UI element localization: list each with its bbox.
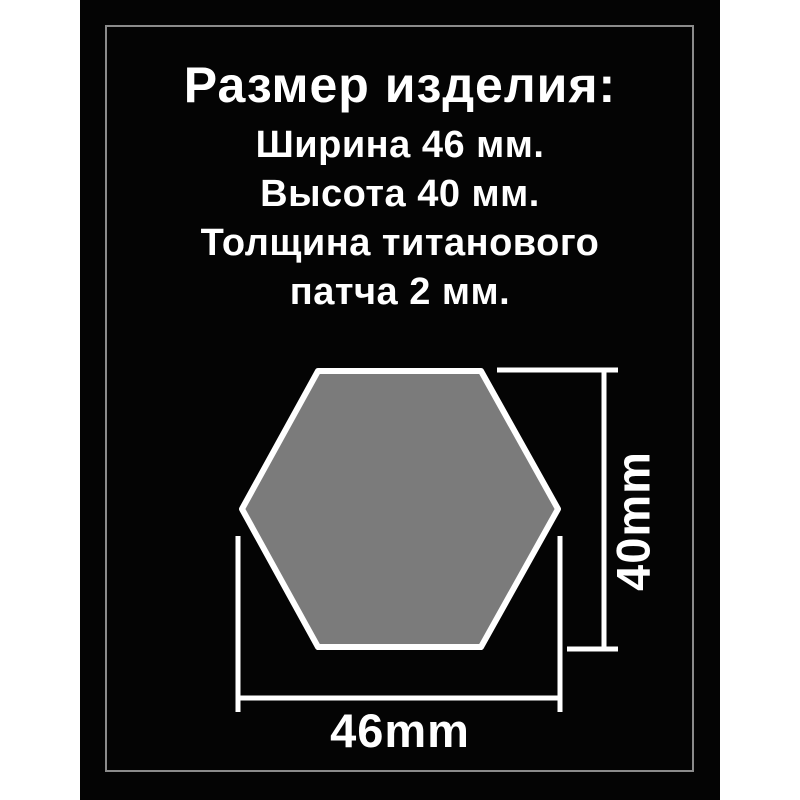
dimension-diagram: 46mm 40mm — [0, 0, 800, 800]
height-dimension-label: 40mm — [606, 451, 659, 591]
width-dimension-label: 46mm — [330, 704, 470, 757]
hexagon-shape — [242, 371, 558, 647]
